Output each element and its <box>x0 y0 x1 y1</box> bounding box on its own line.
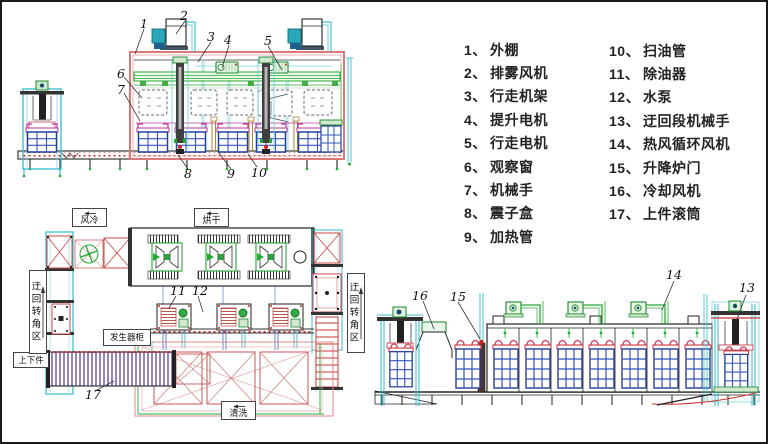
legend-item-label: 行走电机 <box>490 133 548 153</box>
legend-item-label: 除油器 <box>643 64 687 84</box>
legend-item-number: 2、 <box>464 63 490 83</box>
legend-item-number: 3、 <box>464 86 490 106</box>
callout-13: 13 <box>738 282 756 294</box>
legend-item-number: 9、 <box>464 227 490 247</box>
callout-6: 6 <box>114 68 128 80</box>
legend-item-number: 14、 <box>609 134 643 154</box>
callout-14: 14 <box>665 269 683 281</box>
legend-item-number: 1、 <box>464 40 490 60</box>
legend-item: 8、震子盒 <box>464 202 548 225</box>
callout-3: 3 <box>204 31 218 43</box>
area-label-text: 迂回转角区 <box>31 281 40 344</box>
legend-item-number: 10、 <box>609 41 643 61</box>
legend-item-number: 6、 <box>464 157 490 177</box>
area-label-text: 烘干 <box>202 216 220 225</box>
label-cleaning: 清洗 <box>221 401 256 420</box>
label-generator-cabinet: 发生器柜 <box>103 329 151 346</box>
area-label-text: 清洗 <box>229 409 247 418</box>
legend-item-label: 扫油管 <box>643 41 687 61</box>
legend-item: 11、除油器 <box>609 62 730 85</box>
callout-5: 5 <box>261 35 275 47</box>
callout-16: 16 <box>411 290 429 302</box>
legend-column-2: 10、扫油管 11、除油器 12、水泵 13、迂回段机械手 14、热风循环风机 … <box>609 39 730 226</box>
area-label-text: 风冷 <box>80 216 98 225</box>
legend-item-number: 17、 <box>609 204 643 224</box>
callout-10: 10 <box>250 167 268 179</box>
area-label-text: 发生器柜 <box>110 333 144 342</box>
legend-item-number: 12、 <box>609 87 643 107</box>
leg­end-item: 12、水泵 <box>609 86 730 109</box>
text-overlay: 1 2 3 4 5 6 7 8 9 10 11 12 13 14 15 16 1… <box>2 2 768 444</box>
legend-item-label: 上件滚筒 <box>643 204 701 224</box>
equipment-layout-drawing: 1 2 3 4 5 6 7 8 9 10 11 12 13 14 15 16 1… <box>0 0 768 444</box>
callout-4: 4 <box>221 34 235 46</box>
legend-item: 6、观察窗 <box>464 155 548 178</box>
label-detour-corner-right: 迂回转角区 <box>347 273 365 353</box>
legend-item-label: 水泵 <box>643 87 672 107</box>
area-label-text: 迂回转角区 <box>349 282 358 345</box>
legend-item: 15、升降炉门 <box>609 156 730 179</box>
legend-item-label: 提升电机 <box>490 110 548 130</box>
label-air-cooling: 风冷 <box>72 208 107 227</box>
legend-item-label: 行走机架 <box>490 86 548 106</box>
legend-item-label: 观察窗 <box>490 157 534 177</box>
callout-1: 1 <box>137 18 151 30</box>
area-label-text: 上下件 <box>18 356 44 365</box>
legend-item-number: 16、 <box>609 181 643 201</box>
legend-item-label: 排雾风机 <box>490 63 548 83</box>
legend-item-number: 7、 <box>464 180 490 200</box>
legend-item-number: 4、 <box>464 110 490 130</box>
legend-column-1: 1、外棚 2、排雾风机 3、行走机架 4、提升电机 5、行走电机 6、观察窗 7… <box>464 38 548 249</box>
legend-item: 4、提升电机 <box>464 108 548 131</box>
legend-item-number: 11、 <box>609 64 643 84</box>
callout-8: 8 <box>181 168 195 180</box>
legend-item-label: 机械手 <box>490 180 534 200</box>
legend-item: 10、扫油管 <box>609 39 730 62</box>
legend-item: 2、排雾风机 <box>464 61 548 84</box>
legend-item-label: 冷却风机 <box>643 181 701 201</box>
legend-item: 9、加热管 <box>464 225 548 248</box>
callout-2: 2 <box>177 10 191 22</box>
callout-17: 17 <box>84 389 102 401</box>
legend-item-label: 升降炉门 <box>643 158 701 178</box>
legend-item: 3、行走机架 <box>464 85 548 108</box>
legend-item-number: 8、 <box>464 203 490 223</box>
callout-9: 9 <box>224 168 238 180</box>
legend-item-label: 加热管 <box>490 227 534 247</box>
label-drying: 烘干 <box>194 208 229 227</box>
legend-item: 7、机械手 <box>464 178 548 201</box>
legend-item: 14、热风循环风机 <box>609 133 730 156</box>
legend-item-number: 5、 <box>464 133 490 153</box>
callout-15: 15 <box>449 291 467 303</box>
legend-item-label: 震子盒 <box>490 203 534 223</box>
up-arrow-icon <box>40 284 46 340</box>
legend-item-label: 迂回段机械手 <box>643 111 730 131</box>
legend-item: 5、行走电机 <box>464 132 548 155</box>
legend-item-number: 15、 <box>609 158 643 178</box>
legend-item: 13、迂回段机械手 <box>609 109 730 132</box>
legend-item-label: 外棚 <box>490 40 519 60</box>
label-load-unload: 上下件 <box>13 352 49 368</box>
callout-12: 12 <box>191 285 209 297</box>
legend-item: 17、上件滚筒 <box>609 203 730 226</box>
callout-7: 7 <box>114 84 128 96</box>
up-arrow-icon <box>358 285 364 341</box>
legend-item-number: 13、 <box>609 111 643 131</box>
legend-item-label: 热风循环风机 <box>643 134 730 154</box>
label-detour-corner-left: 迂回转角区 <box>29 270 47 354</box>
legend-item: 16、冷却风机 <box>609 179 730 202</box>
legend-item: 1、外棚 <box>464 38 548 61</box>
callout-11: 11 <box>169 285 187 297</box>
